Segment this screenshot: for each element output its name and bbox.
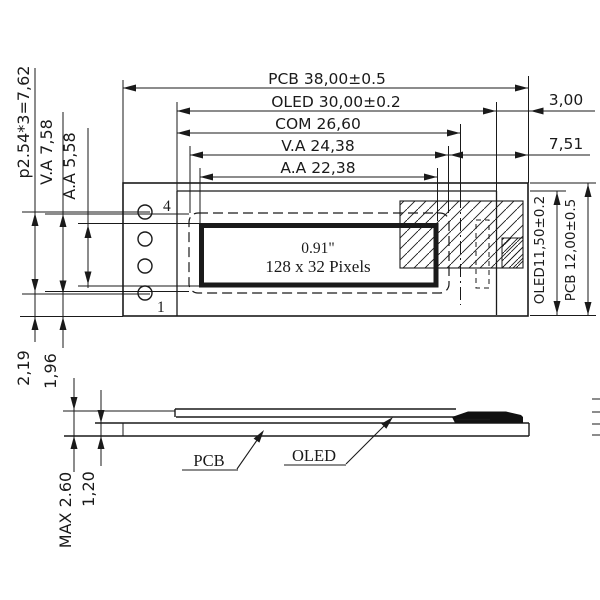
dim-va-height: V.A 7,58 [37,119,56,185]
side-oled-label: OLED [292,446,336,465]
dim-aa-height: A.A 5,58 [60,132,79,199]
dim-com-width: COM 26,60 [275,115,361,133]
pin-label-4: 4 [163,198,171,215]
dim-right-gap: 7,51 [549,135,584,153]
dim-pcb-width: PCB 38,00±0.5 [268,70,386,88]
dim-oled-height: OLED11,50±0.2 [532,196,548,305]
dim-pcb-height: PCB 12,00±0.5 [563,199,579,302]
dim-right-offset: 3,00 [549,91,584,109]
dim-va-width: V.A 24,38 [281,137,354,155]
hatch-subregion [502,238,523,268]
display-resolution-label: 128 x 32 Pixels [265,257,370,276]
dim-pin-pitch: p2.54*3=7,62 [14,66,33,179]
dim-max-thickness: MAX 2.60 [56,472,75,548]
fpc-fold-wedge [452,412,523,424]
pin-1 [138,286,152,300]
horizontal-dimensions: PCB 38,00±0.5 OLED 30,00±0.2 COM 26,60 V… [123,70,595,223]
top-view: 4 1 0.91" 128 x 32 Pixels [123,183,528,316]
dim-pcb-thickness: 1,20 [79,471,98,507]
right-vertical-dimensions: OLED11,50±0.2 PCB 12,00±0.5 [530,183,596,316]
side-pcb-label: PCB [193,451,224,470]
dim-oled-width: OLED 30,00±0.2 [271,93,401,111]
dim-aa-width: A.A 22,38 [280,159,355,177]
display-diagonal-label: 0.91" [301,240,334,257]
pin-label-1: 1 [157,299,165,316]
dim-edge-offset: 1,96 [41,353,60,389]
dim-pin-row-to-edge: 2,19 [14,350,33,386]
technical-drawing-page: 4 1 0.91" 128 x 32 Pixels [0,0,600,600]
left-vertical-dimensions: p2.54*3=7,62 V.A 7,58 A.A 5,58 [14,66,199,349]
pin-2 [138,259,152,273]
oled-module-dimension-drawing: 4 1 0.91" 128 x 32 Pixels [0,0,600,600]
side-view: 2,19 1,96 MAX 2.60 1,20 PCB OLED [14,350,600,548]
pin-3 [138,232,152,246]
